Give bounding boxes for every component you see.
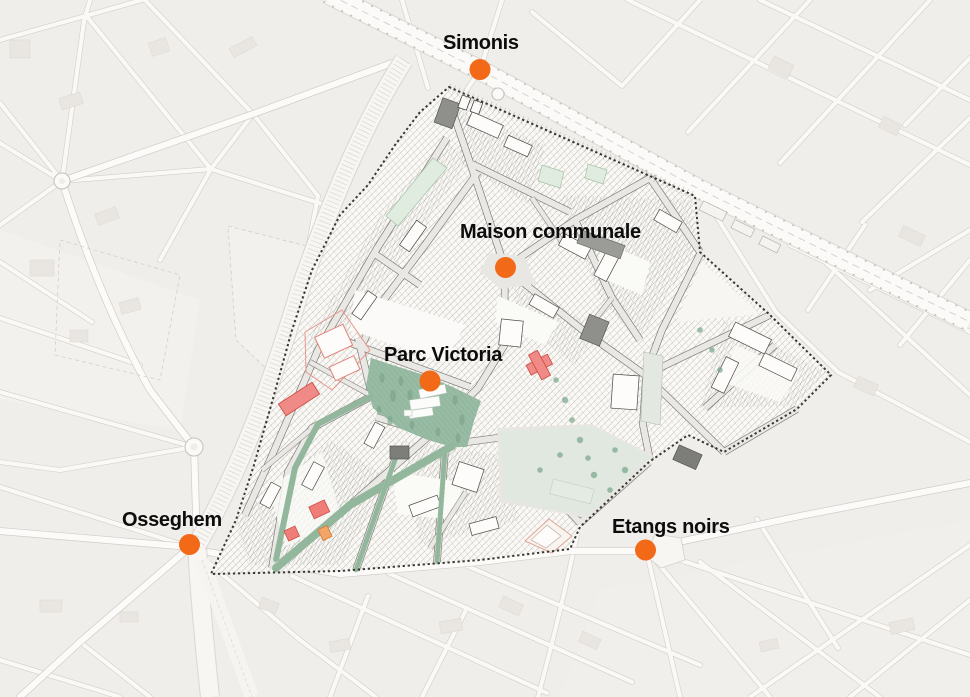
svg-text:Osseghem: Osseghem (122, 509, 222, 531)
svg-text:Maison communale: Maison communale (460, 221, 641, 243)
svg-text:Etangs noirs: Etangs noirs (612, 516, 730, 538)
svg-text:Simonis: Simonis (443, 32, 519, 54)
svg-text:Parc Victoria: Parc Victoria (384, 344, 503, 366)
